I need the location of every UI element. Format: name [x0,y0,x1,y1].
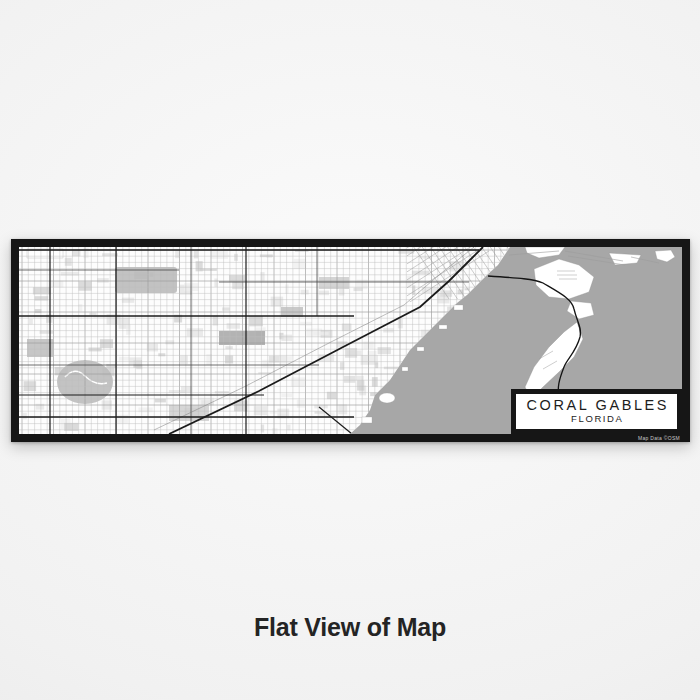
view-caption: Flat View of Map [0,613,700,642]
city-name: CORAL GABLES [524,398,669,413]
city-label-plaque: CORAL GABLES FLORIDA [511,389,682,434]
map-surface: CORAL GABLES FLORIDA [19,247,682,434]
product-image: CORAL GABLES FLORIDA Map Data ©OSM Flat … [0,0,700,700]
state-name: FLORIDA [570,414,624,424]
map-data-credit: Map Data ©OSM [638,435,680,441]
map-print-frame: CORAL GABLES FLORIDA Map Data ©OSM [11,239,690,442]
